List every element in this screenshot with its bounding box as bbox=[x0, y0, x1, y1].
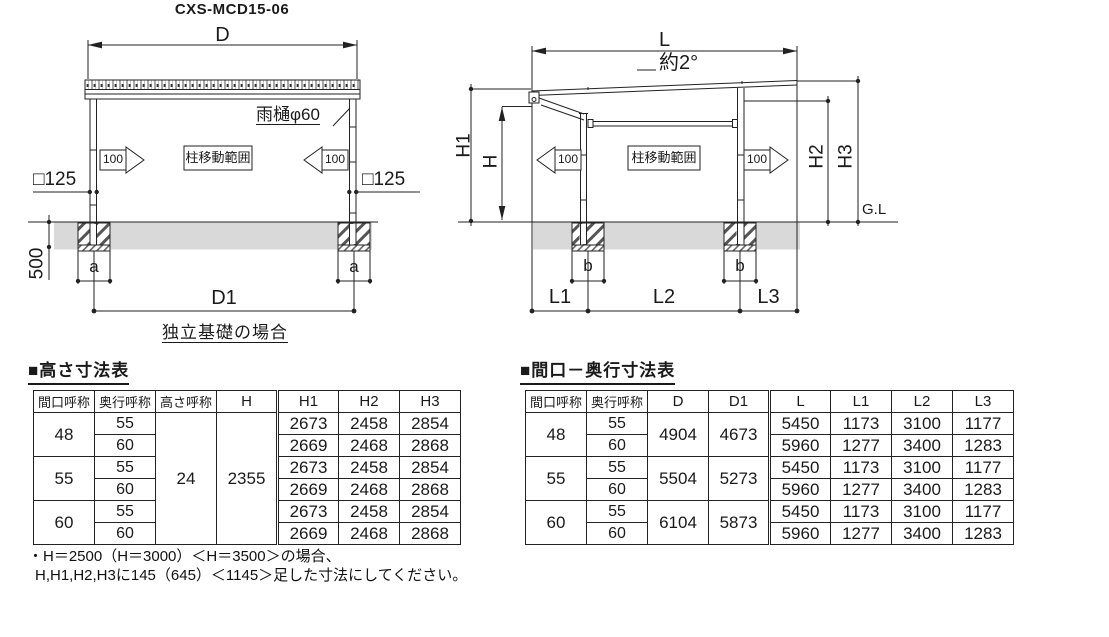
move-value-right: 100 bbox=[322, 153, 348, 165]
table-cell: 55 bbox=[95, 457, 156, 479]
table-cell: 5450 bbox=[770, 413, 831, 435]
dim-label-l3: L3 bbox=[740, 287, 797, 307]
table-header-row: 間口呼称 奥行呼称 高さ呼称 H H1 H2 H3 bbox=[34, 391, 461, 413]
foundation-right bbox=[338, 223, 370, 251]
height-table: 間口呼称 奥行呼称 高さ呼称 H H1 H2 H3 48 55 24 2355 … bbox=[33, 390, 461, 545]
model-number: CXS-MCD15-06 bbox=[170, 2, 294, 17]
roof-deck bbox=[85, 80, 360, 90]
col-header: L2 bbox=[892, 391, 953, 413]
table-cell: 2458 bbox=[339, 501, 400, 523]
table-cell: 2868 bbox=[400, 479, 461, 501]
table-cell: 60 bbox=[34, 501, 95, 545]
dim-label-d: D bbox=[88, 25, 357, 45]
table-cell: 1277 bbox=[831, 479, 892, 501]
side-move-value-right: 100 bbox=[744, 153, 770, 165]
foundation-left bbox=[78, 223, 110, 251]
table-cell: 5450 bbox=[770, 457, 831, 479]
table-cell: 60 bbox=[95, 479, 156, 501]
col-header: D1 bbox=[709, 391, 770, 413]
footnote-line-2: H,H1,H2,H3に145（645）＜1145＞足した寸法にしてください。 bbox=[28, 566, 467, 585]
table-row: 48 55 24 2355 2673 2458 2854 bbox=[34, 413, 461, 435]
dim-label-l1: L1 bbox=[532, 287, 588, 307]
table-cell: 2468 bbox=[339, 523, 400, 545]
table-cell: 1277 bbox=[831, 435, 892, 457]
side-move-value-left: 100 bbox=[555, 153, 581, 165]
table-cell: 48 bbox=[34, 413, 95, 457]
eave-gutter bbox=[529, 92, 588, 120]
table-row: 48 55 4904 4673 5450 1173 3100 1177 bbox=[526, 413, 1014, 435]
table-cell: 2868 bbox=[400, 435, 461, 457]
table-cell: 1177 bbox=[953, 501, 1014, 523]
col-header: L bbox=[770, 391, 831, 413]
dim-label-l: L bbox=[532, 30, 797, 50]
table-cell: 55 bbox=[95, 413, 156, 435]
table-row: 60 5960 1277 3400 1283 bbox=[526, 479, 1014, 501]
table-cell: 5960 bbox=[770, 479, 831, 501]
table-cell: 2669 bbox=[278, 479, 339, 501]
col-header: 高さ呼称 bbox=[156, 391, 217, 413]
side-beam bbox=[588, 120, 738, 128]
table-header-row: 間口呼称 奥行呼称 D D1 L L1 L2 L3 bbox=[526, 391, 1014, 413]
table-cell: 1283 bbox=[953, 435, 1014, 457]
col-header: H2 bbox=[339, 391, 400, 413]
side-view-drawing bbox=[458, 46, 898, 313]
col-header: D bbox=[648, 391, 709, 413]
column-range-label: 柱移動範囲 bbox=[184, 151, 252, 164]
table-cell: 2868 bbox=[400, 523, 461, 545]
table-cell: 3400 bbox=[892, 523, 953, 545]
table-cell: 1173 bbox=[831, 457, 892, 479]
table-cell: 2673 bbox=[278, 501, 339, 523]
dim-label-a-left: a bbox=[87, 258, 101, 275]
table-row: 60 55 6104 5873 5450 1173 3100 1177 bbox=[526, 501, 1014, 523]
table-cell: 5273 bbox=[709, 457, 770, 501]
side-column-right bbox=[738, 88, 745, 245]
span-table-block: ■間口－奥行寸法表 間口呼称 奥行呼称 D D1 L L1 L2 L3 48 5… bbox=[520, 356, 1014, 545]
table-cell: 3400 bbox=[892, 435, 953, 457]
col-header: 間口呼称 bbox=[526, 391, 587, 413]
col-header: 奥行呼称 bbox=[95, 391, 156, 413]
table-cell: 2854 bbox=[400, 413, 461, 435]
gutter-label: 雨樋φ60 bbox=[256, 106, 320, 125]
dim-label-h1: H1 bbox=[455, 129, 474, 163]
foundation-side-left bbox=[572, 223, 604, 251]
table-cell: 5960 bbox=[770, 523, 831, 545]
dim-label-h2: H2 bbox=[808, 140, 827, 174]
table-cell: 3400 bbox=[892, 479, 953, 501]
table-cell: 5960 bbox=[770, 435, 831, 457]
foundation-side-right bbox=[724, 223, 756, 251]
table-cell: 5873 bbox=[709, 501, 770, 545]
footnote-line-1: ・H＝2500（H＝3000）＜H＝3500＞の場合、 bbox=[28, 547, 467, 566]
foundation-caption: 独立基礎の場合 bbox=[162, 324, 288, 343]
dim-label-h3: H3 bbox=[837, 140, 856, 174]
col-header: 奥行呼称 bbox=[587, 391, 648, 413]
table-cell: 2854 bbox=[400, 501, 461, 523]
dim-label-b-right: b bbox=[733, 257, 747, 274]
table-cell: 1177 bbox=[953, 413, 1014, 435]
table-cell: 2468 bbox=[339, 479, 400, 501]
table-cell: 1173 bbox=[831, 501, 892, 523]
table-cell: 55 bbox=[587, 413, 648, 435]
table-cell: 4673 bbox=[709, 413, 770, 457]
span-table-title: ■間口－奥行寸法表 bbox=[520, 356, 675, 385]
table-cell: 60 bbox=[587, 435, 648, 457]
dim-label-500: 500 bbox=[28, 242, 47, 286]
table-cell: 48 bbox=[526, 413, 587, 457]
col-header: H1 bbox=[278, 391, 339, 413]
table-cell: 2673 bbox=[278, 413, 339, 435]
table-cell: 1283 bbox=[953, 479, 1014, 501]
table-cell: 3100 bbox=[892, 413, 953, 435]
table-cell: 3100 bbox=[892, 457, 953, 479]
gutter-leader-line bbox=[333, 108, 350, 126]
dim-label-d1: D1 bbox=[94, 288, 354, 308]
table-cell: 55 bbox=[95, 501, 156, 523]
col-header: H bbox=[217, 391, 278, 413]
move-value-left: 100 bbox=[100, 153, 126, 165]
col-header: L1 bbox=[831, 391, 892, 413]
table-cell: 60 bbox=[587, 479, 648, 501]
dim-label-h: H bbox=[482, 150, 501, 174]
table-cell: 55 bbox=[526, 457, 587, 501]
table-cell: 1177 bbox=[953, 457, 1014, 479]
table-cell: 4904 bbox=[648, 413, 709, 457]
table-cell: 2468 bbox=[339, 435, 400, 457]
table-cell: 2458 bbox=[339, 413, 400, 435]
table-cell: 55 bbox=[587, 501, 648, 523]
table-cell: 3100 bbox=[892, 501, 953, 523]
side-column-range-label: 柱移動範囲 bbox=[628, 151, 700, 164]
table-cell: 24 bbox=[156, 413, 217, 545]
roof-panel bbox=[532, 81, 797, 96]
table-cell: 5450 bbox=[770, 501, 831, 523]
table-cell: 1277 bbox=[831, 523, 892, 545]
table-cell: 1173 bbox=[831, 413, 892, 435]
height-table-title: ■高さ寸法表 bbox=[28, 356, 129, 385]
table-row: 55 55 5504 5273 5450 1173 3100 1177 bbox=[526, 457, 1014, 479]
footnote: ・H＝2500（H＝3000）＜H＝3500＞の場合、 H,H1,H2,H3に1… bbox=[28, 547, 467, 585]
table-cell: 2854 bbox=[400, 457, 461, 479]
slope-label: 約2° bbox=[659, 53, 698, 73]
span-table: 間口呼称 奥行呼称 D D1 L L1 L2 L3 48 55 4904 467… bbox=[525, 390, 1014, 545]
table-cell: 55 bbox=[587, 457, 648, 479]
dim-label-l2: L2 bbox=[588, 287, 740, 307]
ground-line-label: G.L bbox=[862, 202, 886, 217]
table-cell: 2669 bbox=[278, 523, 339, 545]
table-cell: 55 bbox=[34, 457, 95, 501]
table-cell: 2458 bbox=[339, 457, 400, 479]
col-header: L3 bbox=[953, 391, 1014, 413]
table-row: 60 5960 1277 3400 1283 bbox=[526, 435, 1014, 457]
table-cell: 60 bbox=[526, 501, 587, 545]
table-row: 60 5960 1277 3400 1283 bbox=[526, 523, 1014, 545]
column-size-right: □125 bbox=[362, 170, 405, 189]
table-cell: 60 bbox=[95, 435, 156, 457]
table-cell: 2355 bbox=[217, 413, 278, 545]
table-cell: 2669 bbox=[278, 435, 339, 457]
dim-label-b-left: b bbox=[581, 257, 595, 274]
table-cell: 5504 bbox=[648, 457, 709, 501]
table-cell: 1283 bbox=[953, 523, 1014, 545]
col-header: 間口呼称 bbox=[34, 391, 95, 413]
column-size-left: □125 bbox=[33, 170, 76, 189]
table-cell: 2673 bbox=[278, 457, 339, 479]
dim-label-a-right: a bbox=[347, 258, 361, 275]
table-cell: 60 bbox=[587, 523, 648, 545]
table-cell: 6104 bbox=[648, 501, 709, 545]
col-header: H3 bbox=[400, 391, 461, 413]
table-cell: 60 bbox=[95, 523, 156, 545]
spec-sheet-page: CXS-MCD15-06 D 雨樋φ60 100 100 柱移動範囲 □125 … bbox=[0, 0, 1109, 637]
height-table-block: ■高さ寸法表 間口呼称 奥行呼称 高さ呼称 H H1 H2 H3 48 55 2… bbox=[28, 356, 461, 545]
